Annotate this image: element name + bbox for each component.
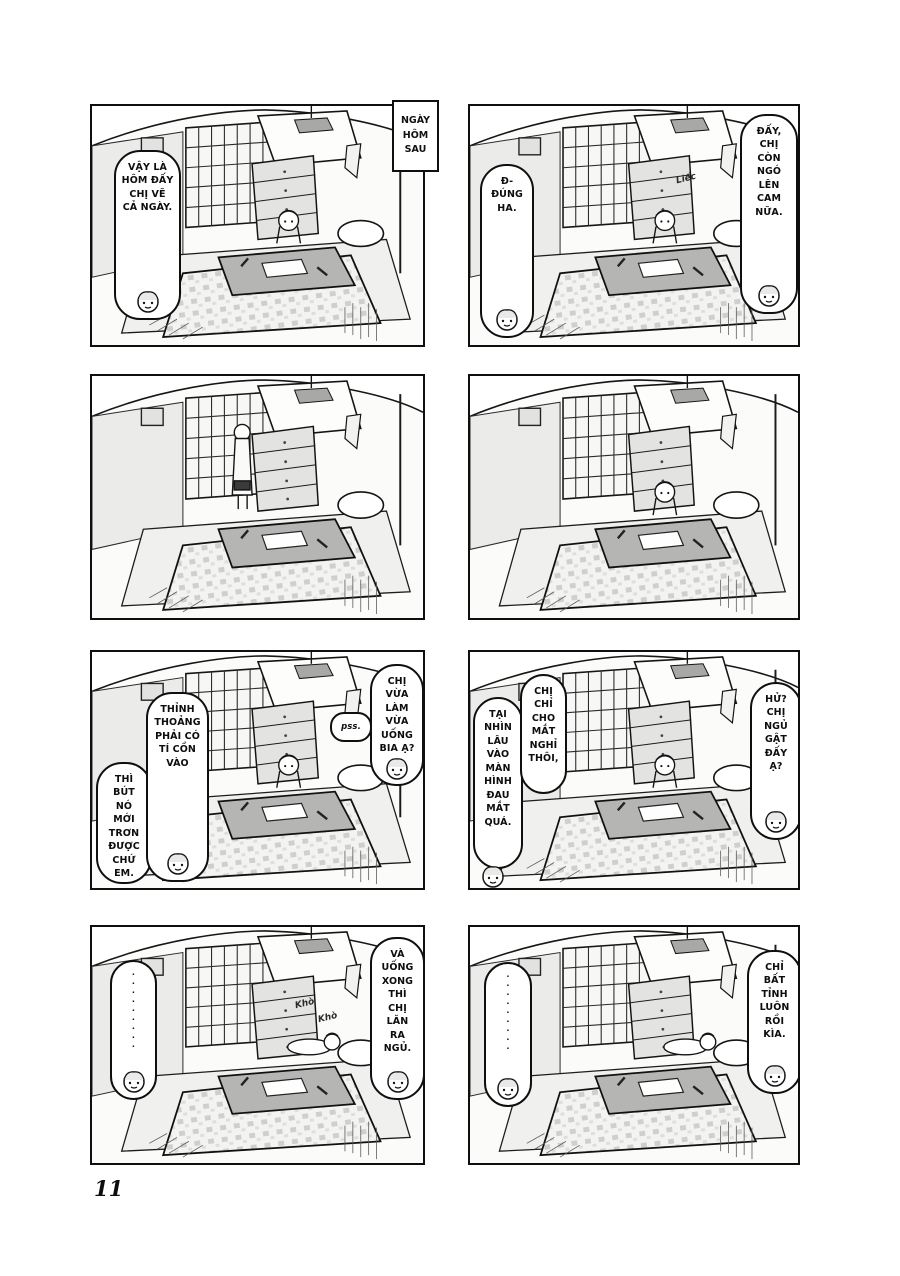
- panel-8: · · · · · · · · · CHỈ BẤT TỈNH LUÔN RỒI …: [468, 925, 800, 1165]
- chibi-face-icon: [760, 1063, 790, 1087]
- silence-bubble: · · · · · · · · ·: [110, 960, 157, 1100]
- speech-bubble: CHỈ BẤT TỈNH LUÔN RỒI KÌA.: [747, 950, 800, 1094]
- panel-6: TẠI NHÌN LÂU VÀO MÀN HÌNH ĐAU MẮT QUÁ. C…: [468, 650, 800, 890]
- bubble-text: HỬ? CHỊ NGỦ GẬT ĐẤY Ạ?: [764, 693, 788, 774]
- caption-text: NGÀY HÔM SAU: [401, 114, 430, 158]
- speech-bubble: TẠI NHÌN LÂU VÀO MÀN HÌNH ĐAU MẮT QUÁ.: [473, 697, 523, 869]
- chibi-face-icon: [478, 864, 508, 888]
- speech-bubble: ĐẤY, CHỊ CÒN NGÓ LÊN CAM NỮA.: [740, 114, 798, 314]
- speech-bubble: THỈNH THOẢNG PHẢI CÓ TÍ CỒN VÀO: [146, 692, 209, 882]
- chibi-face-icon: [163, 851, 193, 875]
- silence-bubble: · · · · · · · · ·: [484, 962, 532, 1107]
- speech-bubble: CHỊ VỪA LÀM VỪA UỐNG BIA Ạ?: [370, 664, 424, 786]
- bubble-text: CHỊ CHỈ CHO MẮT NGHỈ THÔI,: [528, 685, 558, 766]
- speech-bubble: CHỊ CHỈ CHO MẮT NGHỈ THÔI,: [520, 674, 567, 794]
- panel-scene: [470, 376, 798, 618]
- bubble-text: CHỊ VỪA LÀM VỪA UỐNG BIA Ạ?: [375, 675, 419, 756]
- panel-scene: [92, 376, 423, 618]
- chibi-face-icon: [754, 283, 784, 307]
- page-number: 11: [94, 1176, 123, 1201]
- chibi-face-icon: [493, 1076, 523, 1100]
- bubble-text: THÌ BÚT NÓ MỚI TRƠN ĐƯỢC CHỨ EM.: [108, 773, 140, 881]
- bubble-text: VÀ UỐNG XONG THÌ CHỊ LĂN RA NGỦ.: [382, 948, 414, 1056]
- manga-page: NGÀY HÔM SAU VẬY LÀ HÔM ĐẤY CHỊ VẼ CẢ NG…: [0, 0, 900, 1276]
- chibi-face-icon: [382, 756, 412, 780]
- chibi-face-icon: [761, 809, 791, 833]
- bubble-text: · · · · · · · · ·: [132, 971, 135, 1052]
- chibi-face-icon: [133, 289, 163, 313]
- bubble-text: pss.: [341, 721, 361, 733]
- bubble-text: CHỈ BẤT TỈNH LUÔN RỒI KÌA.: [760, 961, 790, 1042]
- speech-bubble: VẬY LÀ HÔM ĐẤY CHỊ VẼ CẢ NGÀY.: [114, 150, 181, 320]
- bubble-text: THỈNH THOẢNG PHẢI CÓ TÍ CỒN VÀO: [154, 703, 200, 770]
- bubble-text: · · · · · · · · ·: [506, 973, 509, 1054]
- bubble-text: Đ- ĐÚNG HA.: [491, 175, 523, 215]
- bubble-text: VẬY LÀ HÔM ĐẤY CHỊ VẼ CẢ NGÀY.: [122, 161, 174, 215]
- speech-bubble: Đ- ĐÚNG HA.: [480, 164, 534, 338]
- speech-bubble: THÌ BÚT NÓ MỚI TRƠN ĐƯỢC CHỨ EM.: [96, 762, 152, 884]
- speech-bubble: HỬ? CHỊ NGỦ GẬT ĐẤY Ạ?: [750, 682, 800, 840]
- chibi-face-icon: [383, 1069, 413, 1093]
- chibi-face-icon: [492, 307, 522, 331]
- caption-box: NGÀY HÔM SAU: [392, 100, 439, 172]
- speech-bubble-small: pss.: [330, 712, 372, 742]
- panel-5: THÌ BÚT NÓ MỚI TRƠN ĐƯỢC CHỨ EM. THỈNH T…: [90, 650, 425, 890]
- bubble-text: ĐẤY, CHỊ CÒN NGÓ LÊN CAM NỮA.: [755, 125, 782, 219]
- speech-bubble: VÀ UỐNG XONG THÌ CHỊ LĂN RA NGỦ.: [370, 937, 425, 1100]
- panel-3: [90, 374, 425, 620]
- panel-2: Liếc Đ- ĐÚNG HA. ĐẤY, CHỊ CÒN NGÓ LÊN CA…: [468, 104, 800, 347]
- bubble-text: TẠI NHÌN LÂU VÀO MÀN HÌNH ĐAU MẮT QUÁ.: [484, 708, 512, 829]
- panel-7: Khò Khò · · · · · · · · · VÀ UỐNG XONG T…: [90, 925, 425, 1165]
- chibi-face-icon: [119, 1069, 149, 1093]
- panel-4: [468, 374, 800, 620]
- panel-1: VẬY LÀ HÔM ĐẤY CHỊ VẼ CẢ NGÀY.: [90, 104, 425, 347]
